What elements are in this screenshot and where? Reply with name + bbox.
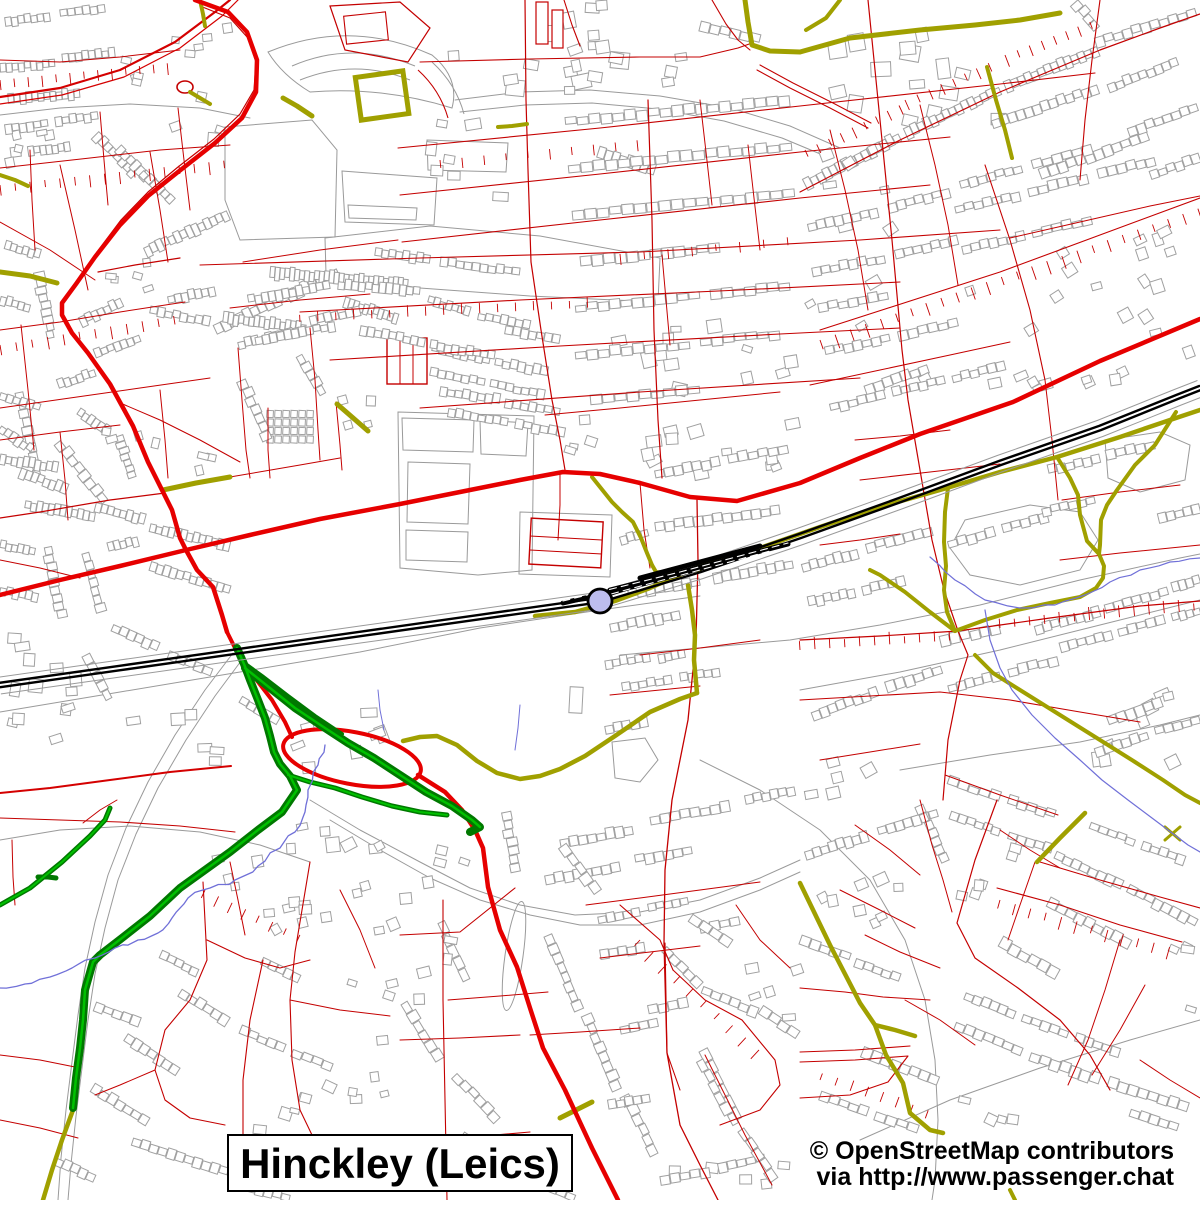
svg-text:© OpenStreetMap contributors: © OpenStreetMap contributors (810, 1137, 1174, 1165)
svg-text:via http://www.passenger.chat: via http://www.passenger.chat (817, 1163, 1175, 1191)
svg-text:Hinckley (Leics): Hinckley (Leics) (240, 1140, 560, 1187)
